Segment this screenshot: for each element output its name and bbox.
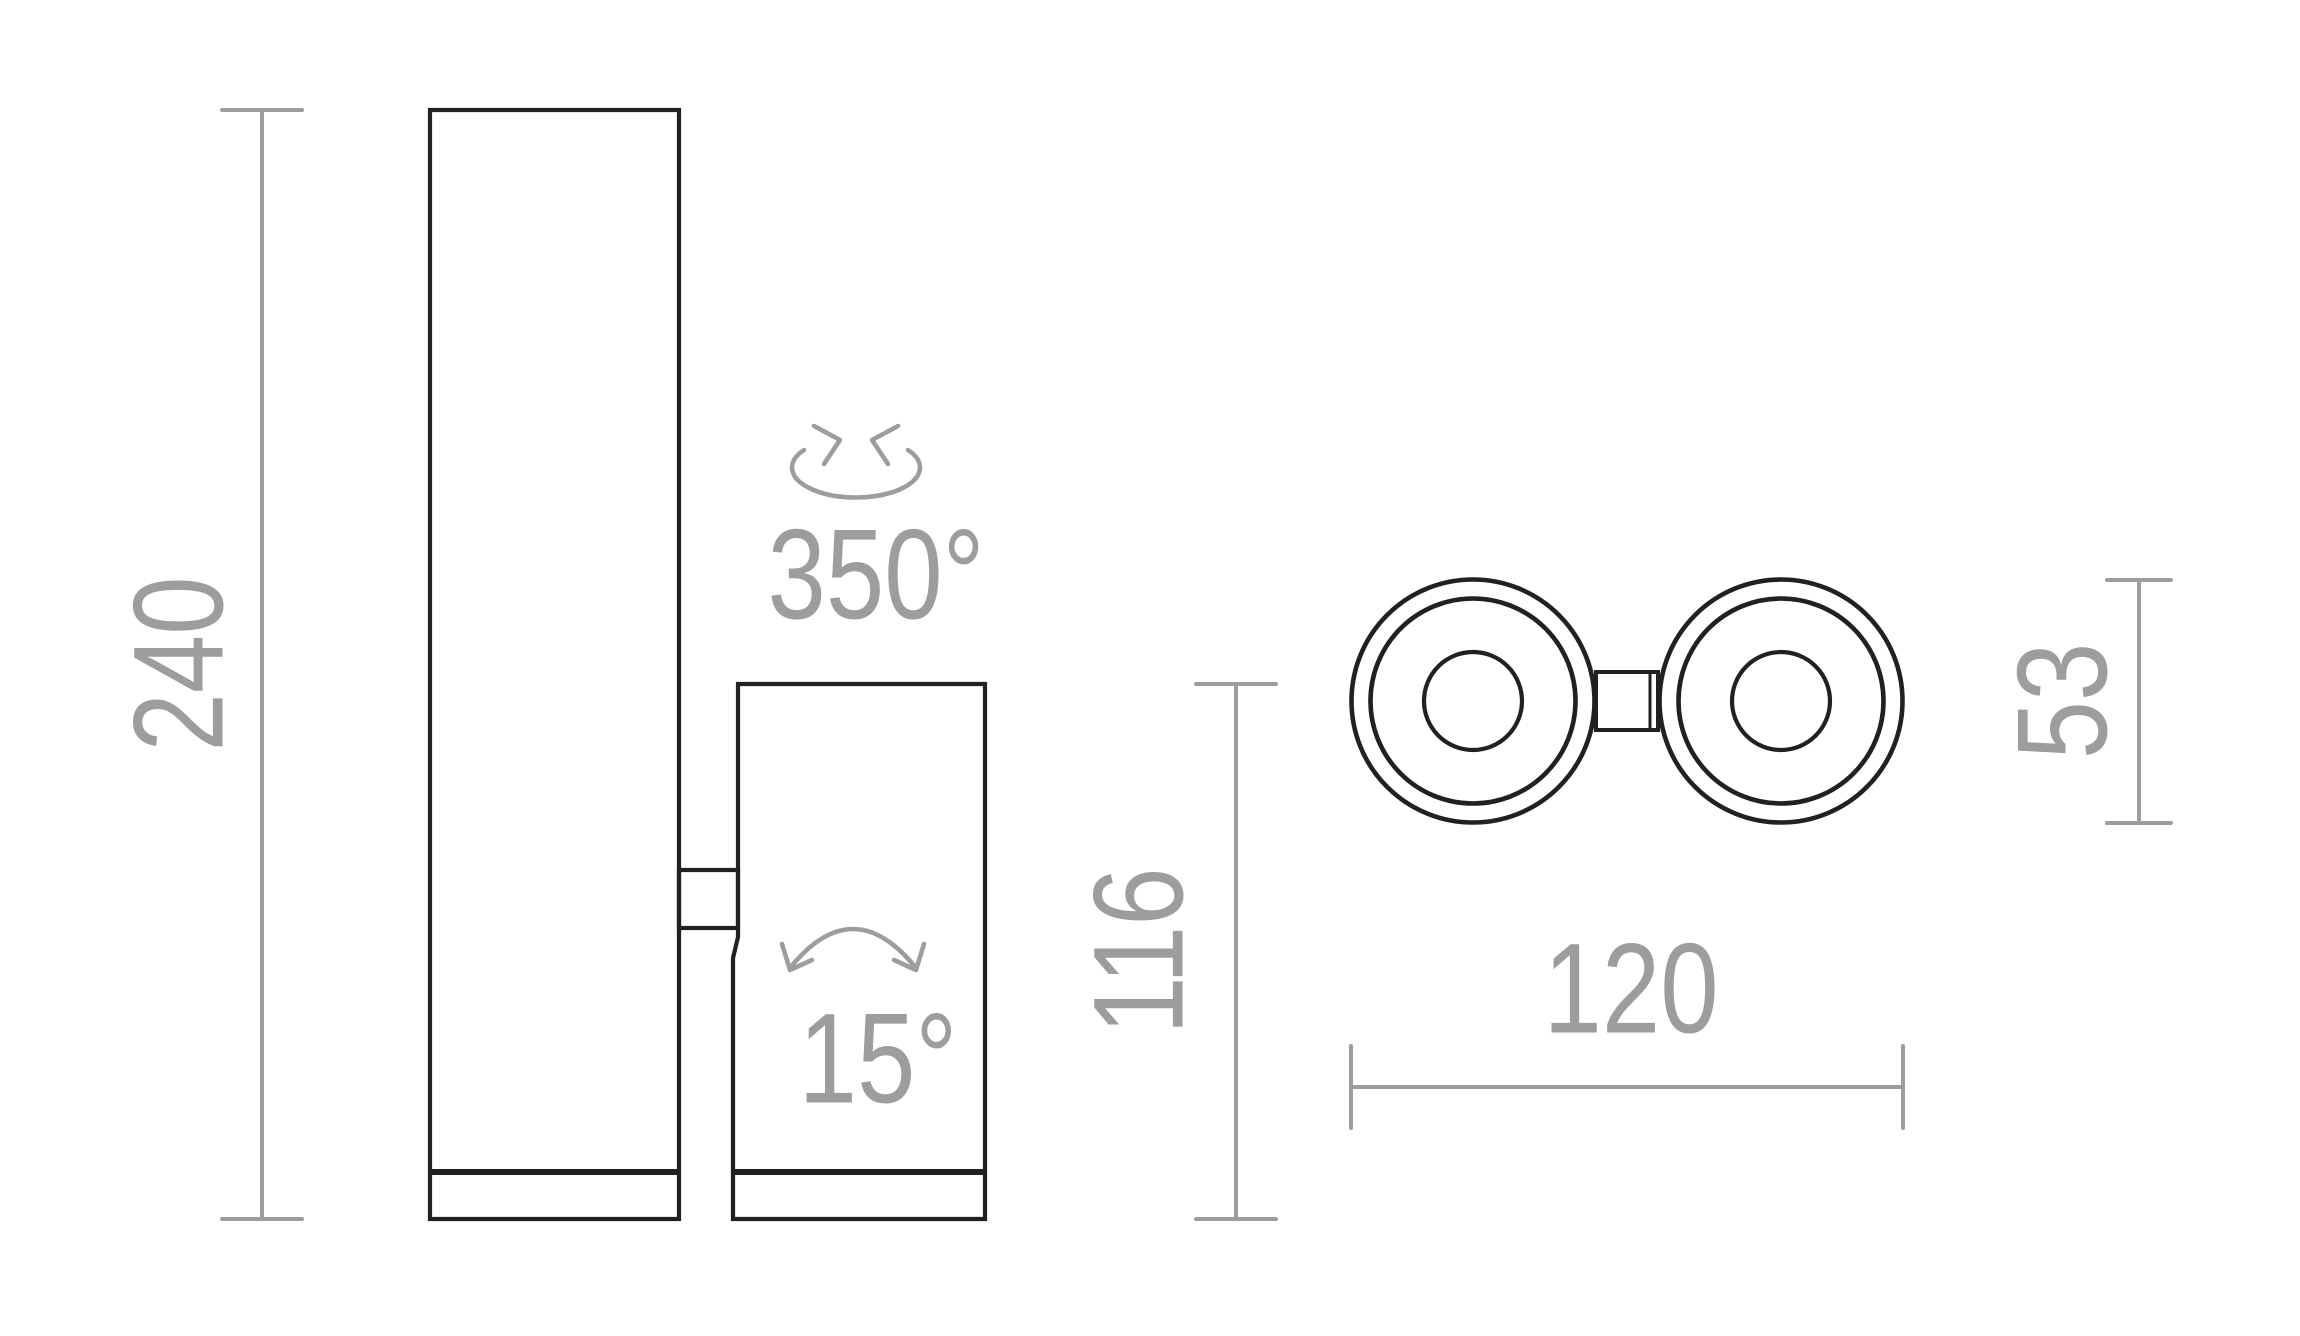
dim-head-height: 116 [1066,684,1276,1219]
right-head-outer-rim [1660,580,1903,823]
dim-label-overall-height: 240 [106,576,249,751]
dim-label-overall-width: 120 [1543,916,1718,1059]
technical-drawing-canvas: 240 116 350° 15° [0,0,2300,1336]
right-head-top [1660,580,1903,823]
dim-label-head-diameter: 53 [1990,643,2133,760]
dim-head-diameter: 53 [1990,580,2171,823]
right-head-lens [1732,652,1830,750]
left-head-outer-rim [1352,580,1595,823]
swivel-angle-label: 350° [767,502,984,645]
rotation-arrowhead-right-icon [872,426,898,464]
right-head-inner-rim [1679,599,1884,804]
rotation-axis-icon [792,450,920,497]
dim-overall-width: 120 [1351,916,1903,1128]
pivot-connector [679,870,738,928]
side-view: 240 116 350° 15° [106,110,1276,1219]
left-head-inner-rim [1371,599,1576,804]
rotation-arrowhead-left-icon [814,426,840,464]
dim-label-head-height: 116 [1066,867,1209,1034]
dimension-drawing: 240 116 350° 15° [0,0,2300,1336]
tilt-annotation: 15° [782,929,957,1130]
body-cylinder-outline [430,110,679,1219]
left-head-lens [1424,652,1522,750]
left-head-top [1352,580,1595,823]
dim-overall-height: 240 [106,110,302,1219]
swivel-annotation: 350° [767,426,984,646]
top-view: 53 120 [1351,580,2171,1129]
tilt-angle-label: 15° [799,986,958,1129]
head-cylinder-outline [733,684,985,1219]
